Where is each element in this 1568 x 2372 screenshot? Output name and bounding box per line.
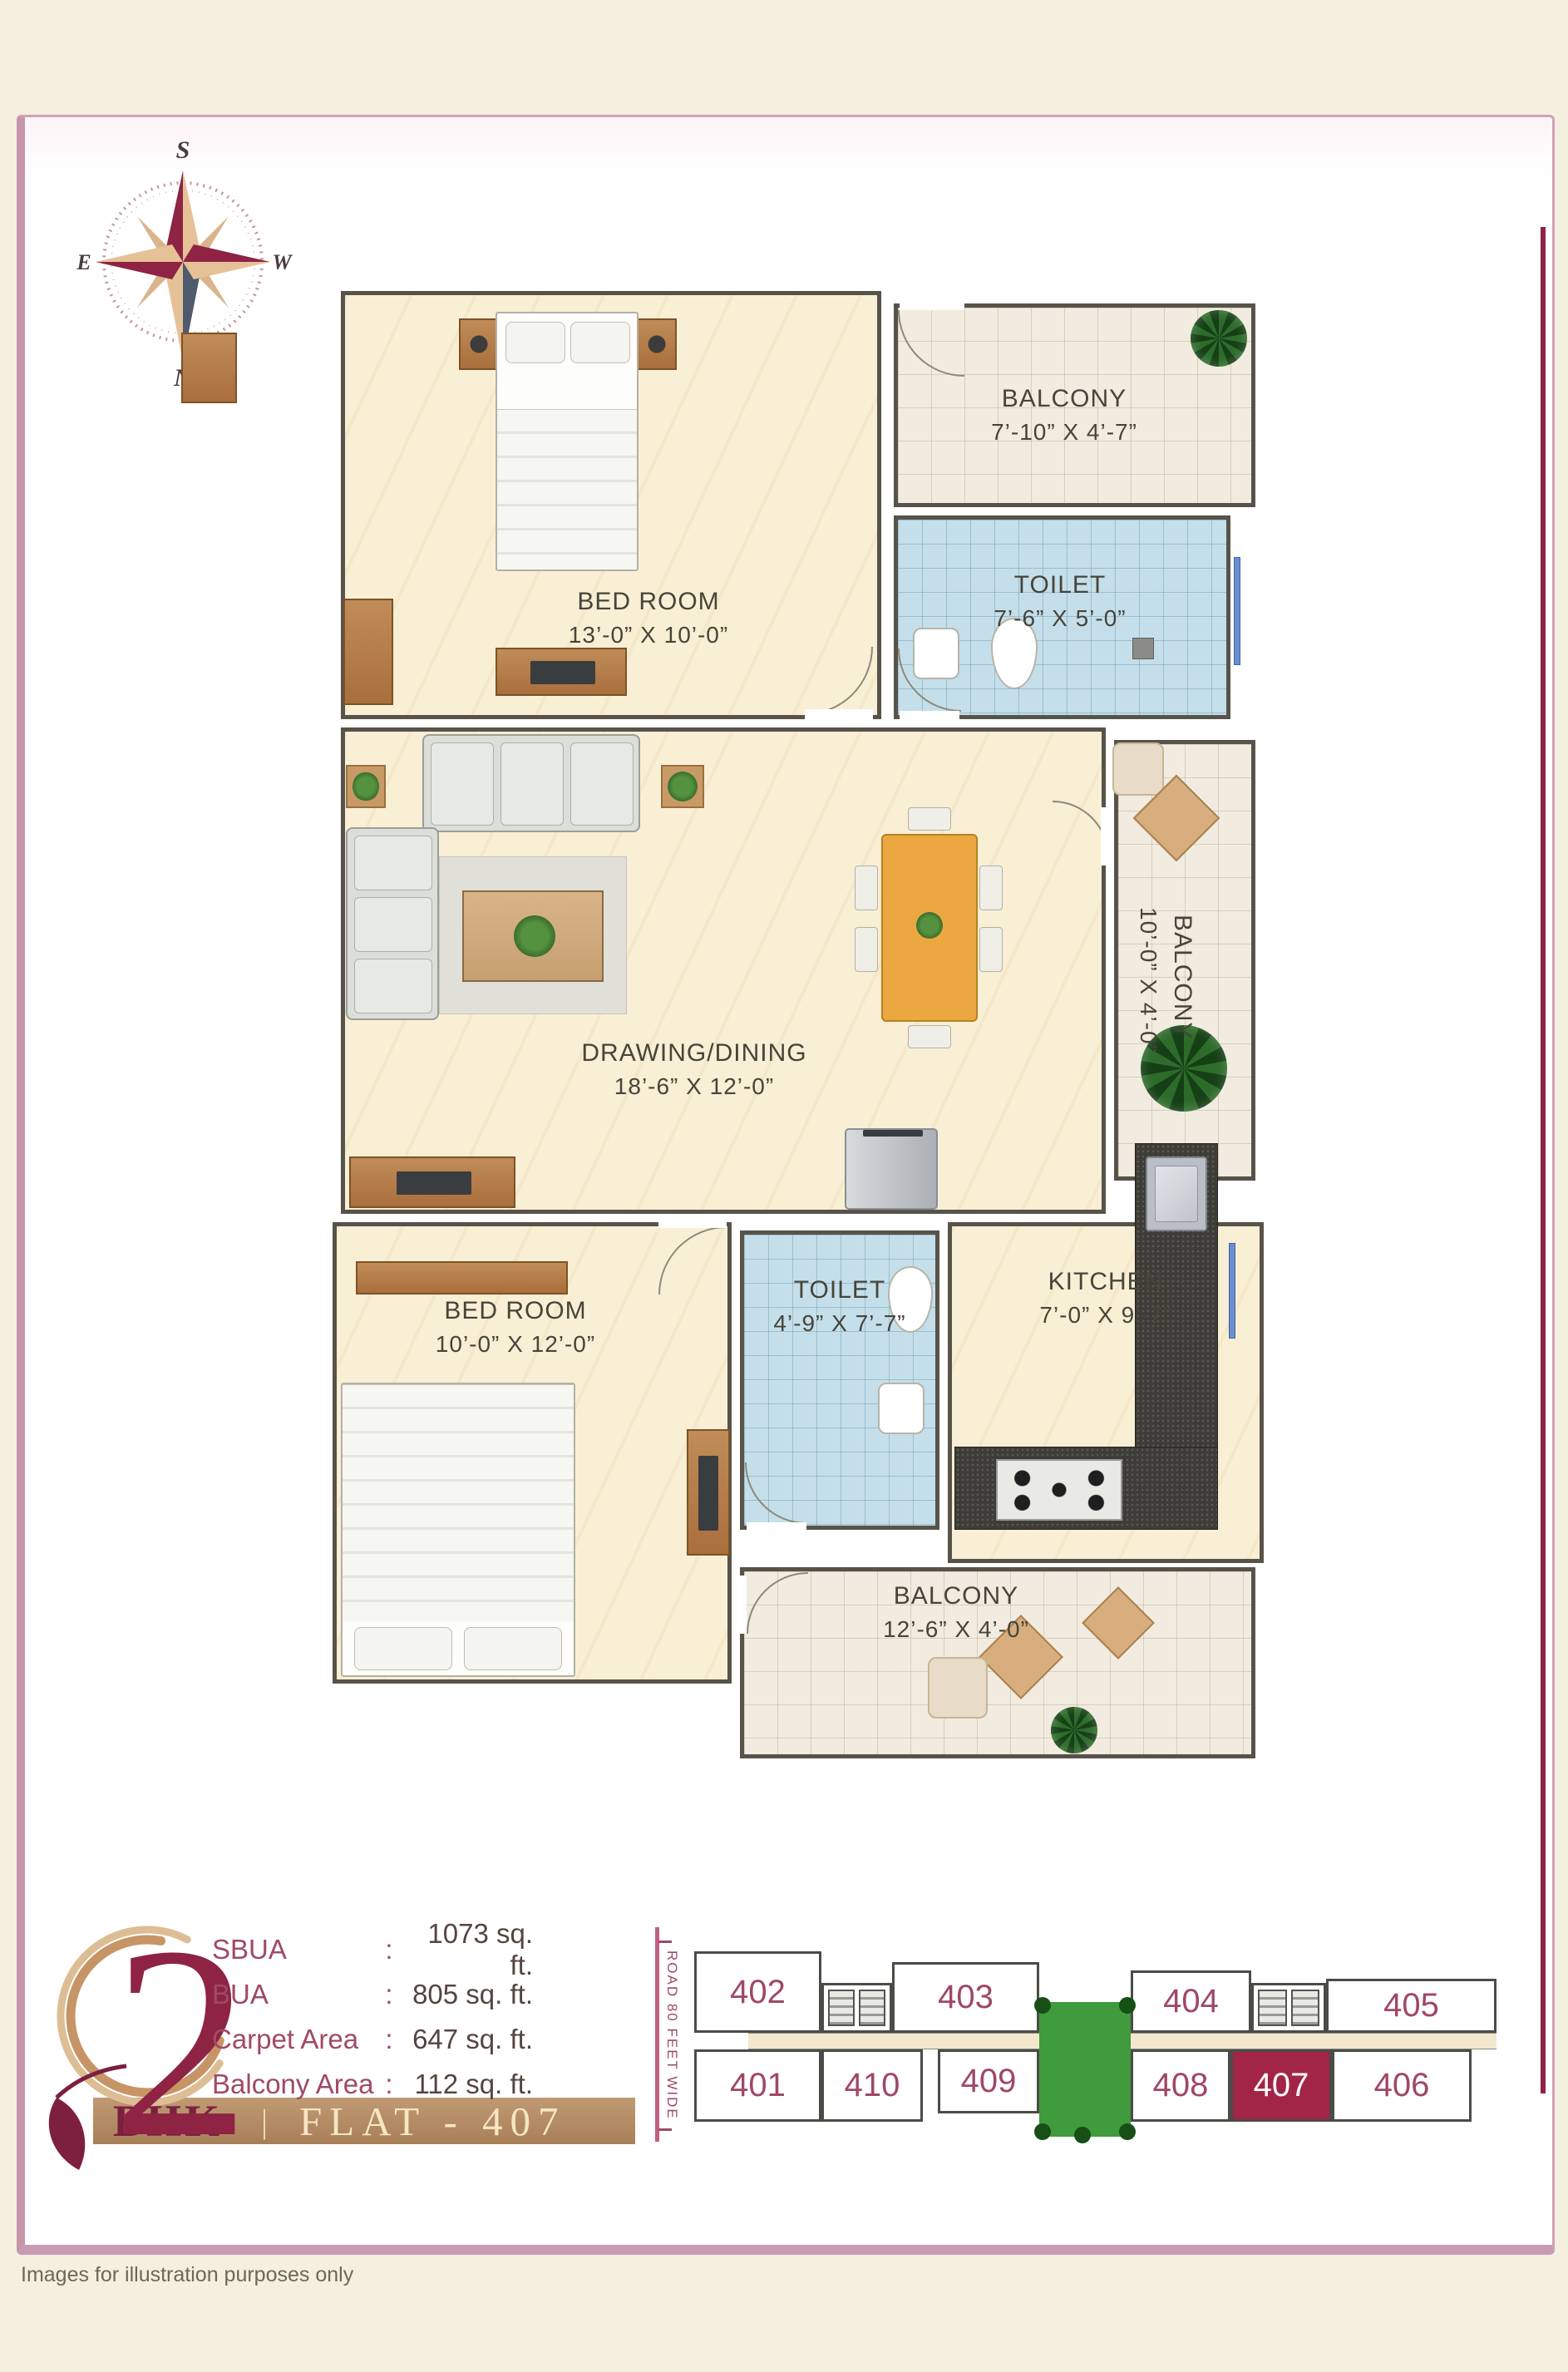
stairs-lift-icon [821,1983,892,2033]
balcony-chair [928,1657,988,1719]
area-row-sbua: SBUA : 1073 sq. ft. [212,1927,533,1972]
compass-south-label: S [176,136,190,164]
plant-pot [346,765,386,808]
keyplan-unit-401: 401 [694,2049,821,2122]
pillow [464,1627,562,1670]
coffee-table [462,890,604,982]
door-gap [658,1215,727,1228]
keyplan-unit-405: 405 [1326,1979,1497,2033]
compass-east-label: E [76,250,91,274]
keyplan-unit-408: 408 [1131,2049,1230,2122]
door-gap [733,1576,747,1634]
road-label: ROAD 80 FEET WIDE [663,1937,680,2133]
keyplan-unit-404: 404 [1131,1970,1251,2033]
washbasin [878,1383,925,1434]
balcony-chair [1112,742,1164,796]
door-gap [900,711,959,724]
tv-unit [687,1429,730,1556]
dining-chair [908,807,951,831]
tv-sideboard [349,1156,515,1208]
blanket [343,1384,574,1621]
gas-stove-icon [996,1459,1122,1521]
nightstand [637,318,677,370]
leaf-icon [49,2098,85,2170]
tv-console [496,648,627,696]
door-gap [805,709,873,722]
dining-chair [855,927,878,972]
kitchen-sink [1146,1156,1207,1231]
area-row-carpet: Carpet Area : 647 sq. ft. [212,2017,533,2062]
pillow [505,322,565,363]
keyplan-unit-403: 403 [892,1962,1039,2033]
right-accent-line [1541,227,1546,2093]
area-table: SBUA : 1073 sq. ft. BUA : 805 sq. ft. Ca… [212,1927,533,2107]
plant-pot [661,765,704,808]
area-row-bua: BUA : 805 sq. ft. [212,1972,533,2017]
window [1234,557,1240,665]
dining-chair [979,927,1003,972]
dining-chair [855,865,878,910]
keyplan: ROAD 80 FEET WIDE 402 403 404 405 401 41… [648,1904,1563,2153]
room-label-kitchen: KITCHEN 7’-0” X 9’-7” [973,1268,1239,1329]
road-line [655,1927,659,2142]
door-gap [1101,807,1112,865]
fridge [845,1128,938,1210]
disclaimer-note: Images for illustration purposes only [21,2263,353,2287]
tv-icon [698,1456,718,1531]
sofa-two-seater [346,827,439,1020]
pillow [354,1627,452,1670]
keyplan-unit-410: 410 [821,2049,923,2122]
keyplan-unit-407-highlighted: 407 [1230,2049,1332,2122]
keyplan-unit-402: 402 [694,1951,821,2033]
double-bed [496,312,639,571]
room-label-bedroom-1: BED ROOM 13’-0” X 10’-0” [515,588,782,648]
room-label-bedroom-2: BED ROOM 10’-0” X 12’-0” [382,1297,648,1358]
palm-plant [1191,310,1247,367]
wardrobe [343,599,393,705]
blanket [497,409,637,570]
pillow [570,322,630,363]
room-label-balcony-right: BALCONY 10’-0” X 4’-0” [1135,802,1196,1151]
palm-plant [1051,1707,1097,1753]
stairs-lift-icon [1251,1983,1326,2033]
courtyard-green [1039,2002,1131,2137]
door-gap [747,1522,806,1534]
table-plant [514,915,555,957]
room-label-balcony-bottom: BALCONY 12’-6” X 4’-0” [823,1582,1089,1643]
room-label-toilet-bottom: TOILET 4’-9” X 7’-7” [715,1276,964,1337]
dining-chair [908,1025,951,1048]
brochure-page: S N E W [0,0,1568,2372]
compass-west-label: W [272,250,293,274]
tv-icon [530,661,595,684]
floor-plan: BED ROOM 13’-0” X 10’-0” BALCONY 7’-10” … [316,279,1276,1775]
area-row-balcony: Balcony Area : 112 sq. ft. [212,2062,533,2107]
centerpiece-plant [916,912,943,939]
keyplan-unit-406: 406 [1332,2049,1472,2122]
room-label-balcony-top: BALCONY 7’-10” X 4’-7” [931,385,1197,446]
room-label-drawing-dining: DRAWING/DINING 18’-6” X 12’-0” [561,1039,827,1100]
nightstand [459,318,499,370]
dining-chair [979,865,1003,910]
sofa-three-seater [422,734,640,832]
room-label-toilet-top: TOILET 7’-6” X 5’-0” [927,571,1193,632]
shower-knob [1132,638,1154,659]
door-gap [900,298,964,310]
double-bed [341,1383,575,1677]
keyplan-unit-409: 409 [938,2049,1039,2113]
road-tick [658,2128,672,2131]
dresser [356,1261,568,1294]
tv-icon [397,1171,471,1195]
wardrobe-niche [181,333,237,403]
